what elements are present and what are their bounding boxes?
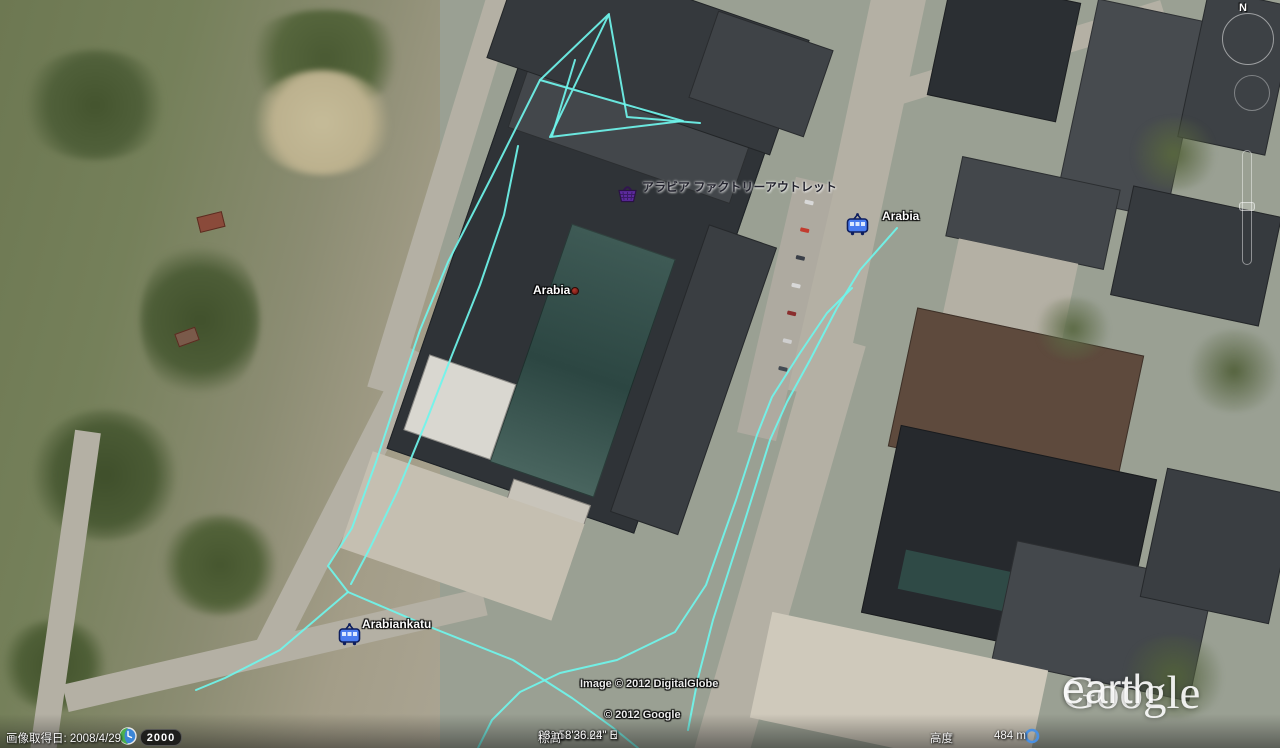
parked-car	[791, 283, 801, 289]
copyright-imagery: Image © 2012 DigitalGlobe	[580, 678, 718, 690]
tree-cluster	[30, 410, 180, 540]
lawn	[1128, 118, 1220, 190]
logo-earth-text: earth	[1062, 666, 1155, 713]
place-label-arabia[interactable]: Arabia	[533, 283, 570, 297]
eye-altitude-label: 高度	[930, 730, 953, 746]
tree-cluster	[160, 515, 280, 615]
lawn	[1032, 298, 1114, 360]
tram-stop-label-arabia[interactable]: Arabia	[882, 209, 919, 223]
tram-stop-label-arabiankatu[interactable]: Arabiankatu	[362, 617, 431, 631]
historical-imagery-clock-icon[interactable]	[119, 727, 137, 748]
tram-stop-icon[interactable]	[844, 212, 871, 241]
building-roof	[1140, 468, 1280, 625]
building-roof	[927, 0, 1081, 122]
park-clearing	[252, 70, 392, 175]
tree-cluster	[140, 240, 260, 400]
copyright-google: © 2012 Google	[604, 709, 681, 721]
time-slider-year-badge[interactable]: 2000	[140, 729, 182, 746]
shopping-basket-icon[interactable]	[616, 183, 639, 208]
elevation-value: 3 m	[544, 730, 563, 742]
compass-look-ring[interactable]	[1222, 13, 1274, 65]
tree-cluster	[20, 50, 170, 160]
parked-car	[800, 227, 810, 233]
move-joystick[interactable]	[1234, 75, 1270, 111]
parked-car	[782, 338, 792, 344]
parked-car	[796, 255, 806, 261]
parked-car	[778, 366, 788, 372]
eye-altitude-value: 484 m	[994, 730, 1026, 742]
parked-car	[787, 310, 797, 316]
streaming-indicator-icon	[1024, 728, 1040, 748]
zoom-slider-handle[interactable]	[1239, 202, 1255, 211]
lawn	[1186, 330, 1280, 412]
poi-label-factory-outlet[interactable]: アラビア ファクトリーアウトレット	[642, 178, 837, 195]
tram-stop-icon[interactable]	[336, 622, 363, 651]
satellite-imagery	[0, 0, 1280, 748]
google-earth-viewport[interactable]: アラビア ファクトリーアウトレット Arabia Arabia Arabiank…	[0, 0, 1280, 748]
place-dot-arabia[interactable]	[571, 287, 579, 295]
imagery-date-label: 画像取得日: 2008/4/29	[6, 730, 121, 746]
